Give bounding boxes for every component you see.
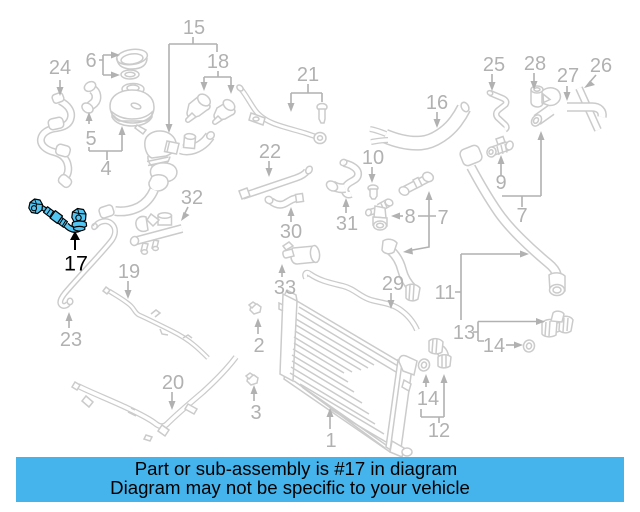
svg-text:20: 20 <box>162 372 184 394</box>
svg-text:7: 7 <box>516 205 527 227</box>
svg-text:27: 27 <box>557 65 579 87</box>
svg-text:7: 7 <box>437 207 448 229</box>
svg-text:2: 2 <box>253 335 264 357</box>
svg-text:11: 11 <box>435 282 456 304</box>
svg-text:29: 29 <box>382 273 404 295</box>
svg-text:Part or sub-assembly is #17 in: Part or sub-assembly is #17 in diagram <box>135 458 457 479</box>
svg-text:4: 4 <box>100 158 111 180</box>
svg-text:5: 5 <box>85 128 96 150</box>
svg-text:13: 13 <box>453 322 475 344</box>
svg-text:15: 15 <box>183 17 205 39</box>
svg-text:17: 17 <box>64 252 88 276</box>
svg-text:12: 12 <box>428 420 450 442</box>
svg-text:28: 28 <box>524 53 546 75</box>
svg-text:16: 16 <box>426 92 448 114</box>
svg-text:14: 14 <box>483 335 505 357</box>
svg-text:Diagram may not be specific to: Diagram may not be specific to your vehi… <box>110 477 470 498</box>
svg-text:6: 6 <box>85 50 96 72</box>
svg-text:10: 10 <box>362 147 384 169</box>
svg-text:25: 25 <box>483 54 505 76</box>
svg-text:1: 1 <box>325 430 336 452</box>
svg-text:22: 22 <box>259 141 281 163</box>
svg-text:30: 30 <box>280 221 302 243</box>
svg-text:8: 8 <box>404 206 415 228</box>
svg-text:26: 26 <box>590 55 612 77</box>
svg-text:14: 14 <box>417 388 439 410</box>
svg-text:18: 18 <box>207 51 229 73</box>
svg-text:23: 23 <box>60 329 82 351</box>
svg-text:33: 33 <box>274 277 296 299</box>
svg-text:24: 24 <box>49 57 71 79</box>
svg-text:21: 21 <box>297 64 319 86</box>
svg-text:19: 19 <box>118 261 140 283</box>
svg-text:31: 31 <box>336 213 358 235</box>
svg-text:32: 32 <box>181 187 203 209</box>
svg-text:3: 3 <box>250 402 261 424</box>
